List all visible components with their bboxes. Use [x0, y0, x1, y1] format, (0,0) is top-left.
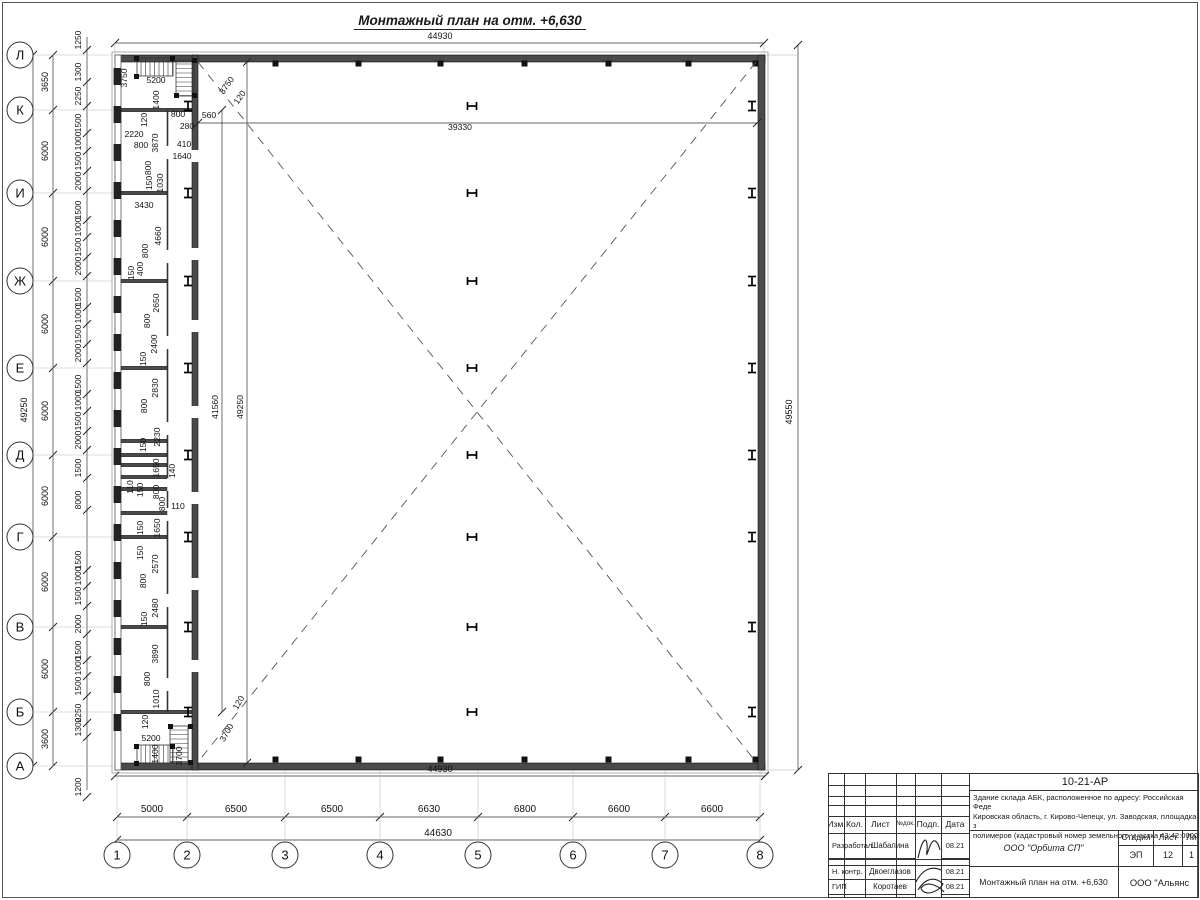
tb-sheets-value: 1	[1183, 846, 1199, 867]
tb-doc-number: 10-21-АР	[970, 774, 1199, 791]
dim-label: 6000	[40, 141, 50, 161]
dim-label: 2000	[73, 614, 83, 633]
stair-column	[134, 56, 139, 61]
tb-col-list: Лист	[865, 816, 896, 834]
dim-label: 6000	[40, 401, 50, 421]
window-pier	[114, 144, 122, 161]
steel-column-symbol	[468, 708, 477, 716]
dim-label: 6000	[40, 486, 50, 506]
signature-2	[913, 862, 947, 898]
dim-label: 1500	[73, 237, 83, 256]
tb-sheet-label: Лист	[1154, 831, 1183, 846]
dim-label: 5000	[141, 804, 164, 815]
dim-label: 1000	[73, 656, 83, 675]
dim-label: 2480	[150, 598, 160, 617]
dim-overall-left: 49250	[19, 397, 29, 422]
axis-label: Б	[16, 705, 25, 720]
door-opening	[191, 248, 199, 260]
axis-bubble: Ж	[7, 268, 33, 294]
window-pier	[114, 524, 122, 541]
wall-post	[686, 757, 691, 762]
axis-bubble: 3	[272, 842, 298, 868]
dim-label: 2000	[73, 171, 83, 190]
door-opening	[191, 320, 199, 332]
dim-label: 3870	[150, 133, 160, 152]
tb-col-izm: Изм.	[829, 816, 844, 834]
dim-label: 1030	[155, 173, 165, 192]
steel-column-symbol	[748, 364, 756, 373]
dim-label: 5200	[141, 733, 160, 743]
window-pier	[114, 372, 122, 389]
axis-bubble: Е	[7, 355, 33, 381]
dim-label: 1500	[73, 374, 83, 393]
window-pier	[114, 182, 122, 199]
stair-column	[134, 744, 139, 749]
tb-role-2: Н. контр.	[829, 865, 865, 880]
axis-label: К	[16, 103, 24, 118]
dim-label: 140	[167, 464, 177, 479]
dim-overall-bottom: 44630	[424, 828, 452, 839]
dim-label: 1000	[73, 304, 83, 323]
steel-column-symbol	[184, 277, 192, 286]
axis-bubble: В	[7, 614, 33, 640]
dim-overall-bottom-outer: 44930	[427, 764, 452, 774]
axis-bubble: И	[7, 180, 33, 206]
dim-overall-right: 49550	[784, 399, 794, 424]
dim-label: 1200	[73, 777, 83, 796]
dim-label: 1650	[152, 518, 162, 537]
dim-label: 6500	[225, 804, 248, 815]
wall-post	[753, 757, 758, 762]
dim-label: 1500	[73, 287, 83, 306]
partition-wall	[121, 453, 167, 456]
tb-date-1: 08.21	[941, 834, 969, 859]
dim-label: 150	[126, 266, 136, 281]
partition-wall	[121, 710, 192, 713]
stair-column	[188, 724, 193, 729]
axis-label: Е	[16, 361, 25, 376]
tb-role-1: Разработал	[829, 834, 865, 859]
dim-label: 1500	[73, 458, 83, 477]
tb-line	[829, 785, 969, 786]
tb-drawing-title: Монтажный план на отм. +6,630	[969, 867, 1119, 898]
dim-label: 1640	[172, 151, 191, 161]
dim-label: 800	[138, 574, 148, 589]
tb-stage-label: Стадия	[1119, 831, 1154, 846]
dim-label: 49250	[235, 395, 245, 419]
stair-column	[170, 56, 175, 61]
tb-desc-line: Кировская область, г. Кирово-Чепецк, ул.…	[973, 812, 1196, 830]
steel-column-symbol	[468, 189, 477, 197]
window-pier	[114, 106, 122, 123]
title-block: Изм. Кол. Лист №док. Подп. Дата Разработ…	[828, 773, 1199, 898]
axis-label: Ж	[14, 274, 26, 289]
dim-label: 1500	[73, 640, 83, 659]
wall-post	[522, 61, 527, 66]
tb-line	[829, 805, 969, 806]
dim-label: 150	[138, 352, 148, 367]
dim-label: 6630	[418, 804, 441, 815]
dim-label: 2570	[150, 554, 160, 573]
tb-company: ООО "Альянс	[1119, 867, 1199, 898]
stair-column	[188, 760, 193, 765]
dim-label: 1400	[150, 744, 160, 763]
dim-label: 400	[135, 262, 145, 277]
tb-col-data: Дата	[941, 816, 969, 834]
stair-column	[134, 761, 139, 766]
window-pier	[114, 334, 122, 351]
window-pier	[114, 448, 122, 465]
tb-col-ndok: №док.	[896, 816, 915, 834]
axis-bubble: 7	[652, 842, 678, 868]
axis-bubble: 4	[367, 842, 393, 868]
axis-bubble: Л	[7, 42, 33, 68]
dim-label: 2220	[124, 129, 143, 139]
dim-label: 3430	[134, 200, 153, 210]
steel-column-symbol	[184, 623, 192, 632]
tb-role-3: ГИП	[829, 880, 865, 895]
steel-column-symbol	[748, 451, 756, 460]
drawing-sheet: { "title": "Монтажный план на отм. +6,63…	[0, 0, 1200, 900]
dim-label: 800	[142, 672, 152, 687]
window-pier	[114, 486, 122, 503]
dim-label: 3750	[217, 74, 236, 96]
steel-column-symbol	[468, 451, 477, 459]
steel-column-symbol	[748, 708, 756, 717]
axis-label: А	[16, 759, 25, 774]
dim-label: 1000	[73, 131, 83, 150]
dim-label: 150	[138, 438, 148, 453]
dim-label: 3700	[174, 746, 184, 765]
tb-line	[829, 796, 969, 797]
dim-label: 1500	[73, 550, 83, 569]
tb-line	[829, 859, 969, 860]
wall-post	[606, 757, 611, 762]
steel-column-symbol	[468, 623, 477, 631]
wall-post	[522, 757, 527, 762]
dim-label: 150	[139, 612, 149, 627]
wall-post	[606, 61, 611, 66]
dim-label: 1000	[73, 217, 83, 236]
tb-name-1: Шабалина	[865, 834, 915, 859]
tb-org: ООО "Орбита СП"	[969, 831, 1119, 867]
tb-description: Здание склада АБК, расположенное по адре…	[970, 791, 1199, 831]
dim-label: 120	[140, 715, 150, 730]
tb-sheet-value: 12	[1154, 846, 1183, 867]
stair-column	[168, 724, 173, 729]
dim-label: 1500	[73, 324, 83, 343]
dim-label: 1300	[73, 717, 83, 736]
dim-label: 110	[125, 480, 135, 494]
dim-label: 1500	[73, 200, 83, 219]
dim-label: 150	[135, 546, 145, 561]
dim-label: 6000	[40, 659, 50, 679]
wall-post	[273, 61, 278, 66]
stair-flight	[176, 60, 194, 96]
axis-label: 7	[661, 848, 668, 863]
door-opening	[191, 660, 199, 672]
window-pier	[114, 600, 122, 617]
tb-sheets-label: Ли	[1183, 831, 1199, 846]
dim-label: 2400	[149, 334, 159, 353]
tb-name-3: Коротаев	[865, 880, 915, 895]
tb-name-2: Двоеглазов	[865, 865, 915, 880]
dim-label: 3600	[40, 729, 50, 749]
dim-label: 280	[180, 121, 195, 131]
dim-label: 1300	[73, 62, 83, 81]
dim-label: 800	[143, 161, 153, 176]
dim-label: 2650	[151, 293, 161, 312]
window-pier	[114, 258, 122, 275]
dim-label: 150	[135, 483, 145, 498]
dim-label: 1500	[73, 586, 83, 605]
tb-desc-line: Здание склада АБК, расположенное по адре…	[973, 793, 1184, 811]
dim-label: 3750	[119, 68, 129, 87]
dim-label: 2000	[73, 430, 83, 449]
dim-label: 5200	[146, 75, 165, 85]
steel-column-symbol	[748, 277, 756, 286]
dim-label: 410	[177, 139, 192, 149]
steel-column-symbol	[468, 102, 477, 110]
axis-label: Л	[16, 48, 25, 63]
tb-col-kol: Кол.	[844, 816, 865, 834]
axis-label: 2	[183, 848, 190, 863]
dim-label: 1250	[73, 30, 83, 49]
wall-post	[686, 61, 691, 66]
steel-column-symbol	[184, 451, 192, 460]
steel-column-symbol	[748, 623, 756, 632]
dim-label: 1500	[73, 113, 83, 132]
window-pier	[114, 562, 122, 579]
wall-right	[758, 55, 765, 770]
window-pier	[114, 410, 122, 427]
stair-column	[134, 74, 139, 79]
steel-column-symbol	[184, 189, 192, 198]
dim-label: 6600	[608, 804, 631, 815]
dim-label: 1010	[151, 689, 161, 708]
steel-column-symbol	[468, 533, 477, 541]
axis-bubble: 1	[104, 842, 130, 868]
window-pier	[114, 638, 122, 655]
tb-stage-value: ЭП	[1119, 846, 1154, 867]
door-opening	[191, 406, 199, 418]
dim-label: 1000	[73, 391, 83, 410]
dim-label: 800	[139, 399, 149, 414]
door-opening	[191, 492, 199, 504]
axis-label: 5	[474, 848, 481, 863]
door-opening	[191, 578, 199, 590]
dim-label: 6000	[40, 227, 50, 247]
dim-label: 800	[140, 244, 150, 259]
axis-bubble: 8	[747, 842, 773, 868]
stair-column	[192, 93, 197, 98]
axis-bubble: 5	[465, 842, 491, 868]
dim-label: 3650	[40, 72, 50, 92]
dim-label: 110	[171, 501, 185, 511]
dim-label: 1500	[73, 676, 83, 695]
dim-label: 1400	[151, 90, 161, 109]
steel-column-symbol	[468, 364, 477, 372]
plan-line	[83, 793, 91, 801]
stair-column	[174, 93, 179, 98]
dim-label: 1500	[73, 411, 83, 430]
axis-label: 3	[281, 848, 288, 863]
dim-label: 6500	[321, 804, 344, 815]
window-pier	[114, 220, 122, 237]
axis-label: И	[15, 186, 24, 201]
dim-label: 560	[202, 110, 217, 120]
floor-plan-svg: 4925036506000600060006000600060006000360…	[0, 0, 1200, 900]
wall-post	[356, 61, 361, 66]
wall-post	[273, 757, 278, 762]
stair-column	[192, 58, 197, 63]
dim-label: 2830	[150, 378, 160, 397]
dim-label: 2230	[152, 427, 162, 446]
dim-label: 150	[135, 521, 145, 536]
axis-label: Г	[16, 530, 23, 545]
dim-label: 120	[231, 88, 248, 106]
axis-bubble: 6	[560, 842, 586, 868]
axis-bubble: Д	[7, 442, 33, 468]
window-pier	[114, 714, 122, 731]
dim-label: 4660	[153, 226, 163, 245]
dim-label: 800	[171, 109, 186, 119]
axis-label: 4	[376, 848, 383, 863]
dim-label: 1650	[151, 458, 161, 477]
dim-label: 1000	[73, 566, 83, 585]
axis-label: 1	[113, 848, 120, 863]
steel-column-symbol	[184, 533, 192, 542]
dim-label: 120	[230, 694, 246, 712]
door-opening	[191, 150, 199, 162]
dim-label: 3890	[150, 644, 160, 663]
steel-column-symbol	[184, 364, 192, 373]
dim-label: 2250	[73, 86, 83, 105]
dim-label: 120	[139, 113, 149, 128]
axis-label: 8	[756, 848, 763, 863]
axis-bubble: 2	[174, 842, 200, 868]
signature-1	[914, 832, 944, 866]
axis-label: Д	[16, 448, 25, 463]
dim-label: 3700	[217, 722, 235, 744]
dim-label: 6000	[40, 314, 50, 334]
wall-post	[438, 61, 443, 66]
dim-label: 8000	[73, 490, 83, 509]
window-pier	[114, 676, 122, 693]
dim-overall-top: 44930	[427, 31, 452, 41]
dim-label: 6800	[514, 804, 537, 815]
dim-label: 800	[134, 140, 149, 150]
axis-bubble: Г	[7, 524, 33, 550]
axis-label: 6	[569, 848, 576, 863]
dim-label: 150	[144, 176, 154, 191]
axis-bubble: А	[7, 753, 33, 779]
wall-post	[356, 757, 361, 762]
axis-label: В	[16, 620, 25, 635]
dim-label: 41560	[210, 395, 220, 419]
dim-label: 800	[142, 314, 152, 329]
axis-bubble: К	[7, 97, 33, 123]
dim-label: 1500	[73, 151, 83, 170]
dimension-labels-layer: 4925036506000600060006000600060006000360…	[7, 30, 794, 868]
dim-label: 2000	[73, 256, 83, 275]
steel-column-symbol	[748, 189, 756, 198]
dim-label: 6000	[40, 572, 50, 592]
axis-bubble: Б	[7, 699, 33, 725]
wall-post	[438, 757, 443, 762]
steel-column-symbol	[468, 277, 477, 285]
dim-label: 800	[157, 497, 167, 512]
dim-label: 39330	[448, 122, 472, 132]
dim-label: 6600	[701, 804, 724, 815]
steel-column-symbol	[748, 102, 756, 111]
dim-label: 2000	[73, 343, 83, 362]
window-pier	[114, 296, 122, 313]
steel-column-symbol	[748, 533, 756, 542]
